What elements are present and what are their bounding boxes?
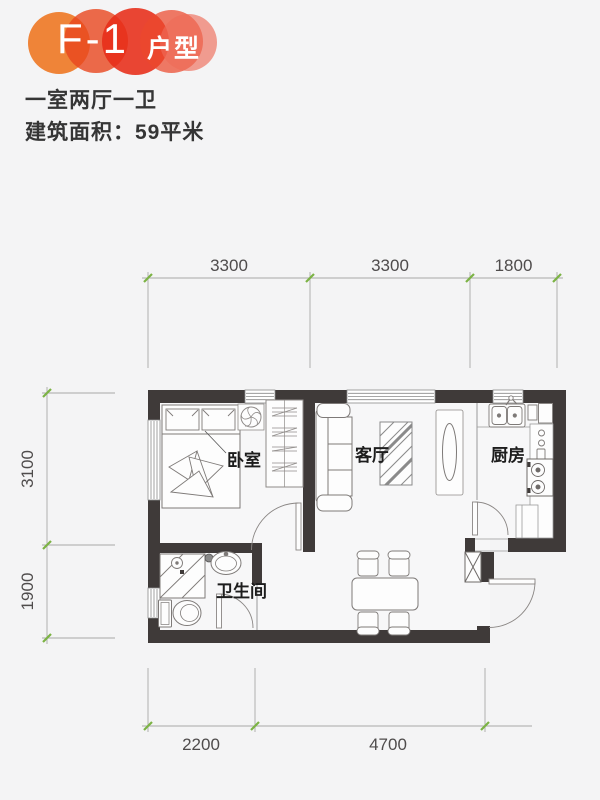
room-label-kitchen: 厨房 (491, 445, 525, 465)
shaft-column (465, 552, 481, 582)
unit-code: F-1 (57, 18, 129, 60)
dining-chair (388, 551, 410, 576)
kitchen-top-window (493, 390, 523, 403)
dim-bottom: 2200 4700 (142, 668, 532, 754)
room-label-bathroom: 卫生间 (216, 581, 267, 601)
ceiling-fan (238, 404, 264, 430)
wardrobe (266, 400, 303, 487)
dim-label: 3300 (210, 256, 248, 275)
dim-top: 3300 3300 1800 (142, 256, 563, 368)
room-label-bedroom: 卧室 (227, 450, 261, 470)
fridge (528, 404, 553, 424)
dim-label: 1800 (495, 256, 533, 275)
shower (160, 554, 205, 598)
bathroom-sink (211, 552, 241, 575)
floor-plan: 卧室 客厅 厨房 卫生间 3300 3300 1800 (0, 0, 600, 800)
dim-label: 3100 (18, 450, 37, 488)
bedroom-left-window (148, 420, 160, 500)
dim-label: 1900 (18, 573, 37, 611)
toilet (159, 600, 202, 627)
floorplan-logo: F-1 户型 (28, 8, 228, 78)
kitchen-cabinet (516, 505, 538, 538)
dim-label: 4700 (369, 735, 407, 754)
dim-label: 3300 (371, 256, 409, 275)
area-text: 建筑面积：59平米 (25, 122, 204, 143)
sofa (316, 404, 352, 512)
dining-chair (357, 612, 379, 635)
entry-door (489, 579, 535, 628)
room-label-living: 客厅 (354, 445, 389, 465)
living-top-window (347, 390, 435, 403)
stove (527, 459, 553, 496)
tv-cabinet (436, 410, 463, 495)
dining-chair (388, 612, 410, 635)
dim-left: 3100 1900 (18, 387, 115, 644)
layout-type-text: 一室两厅一卫 (25, 90, 157, 111)
unit-type-label: 户型 (147, 37, 201, 62)
dining-table (352, 578, 418, 610)
dining-chair (357, 551, 379, 576)
dim-label: 2200 (182, 735, 220, 754)
